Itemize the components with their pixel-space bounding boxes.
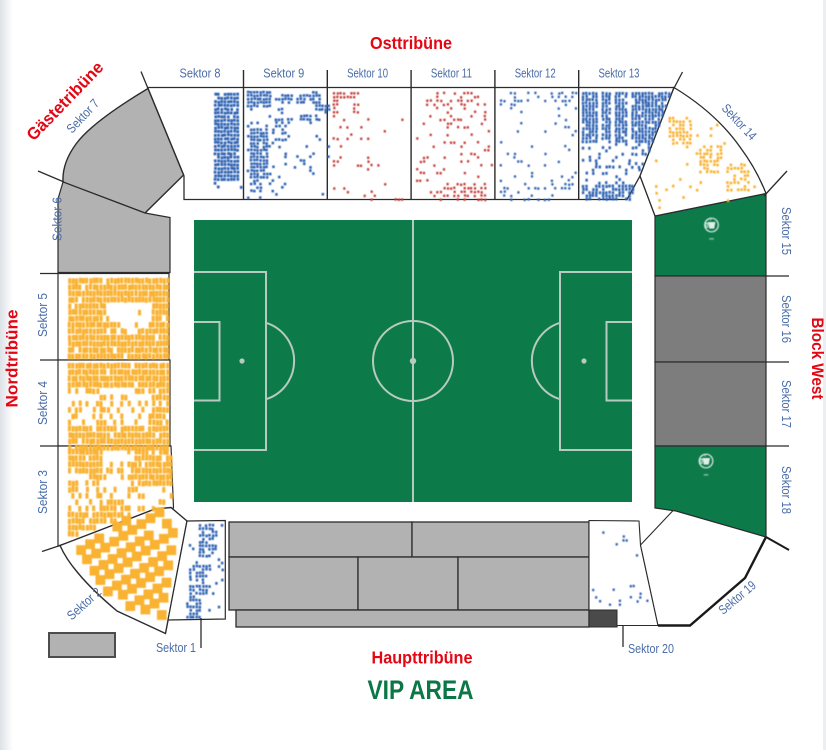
svg-text:Sektor 15: Sektor 15 [779,207,794,255]
svg-text:Block West: Block West [808,318,826,400]
svg-text:Sektor 11: Sektor 11 [431,66,472,81]
svg-text:Osttribüne: Osttribüne [370,33,452,53]
svg-text:Haupttribüne: Haupttribüne [372,648,473,668]
svg-text:Sektor 13: Sektor 13 [599,66,640,81]
svg-text:Sektor 1: Sektor 1 [156,640,196,655]
svg-text:Sektor 10: Sektor 10 [347,66,388,81]
svg-text:Sektor 12: Sektor 12 [515,66,556,81]
svg-text:Sektor 6: Sektor 6 [50,197,65,241]
svg-text:Sektor 18: Sektor 18 [779,466,794,514]
svg-text:Sektor 16: Sektor 16 [779,295,794,343]
svg-text:Sektor 4: Sektor 4 [35,381,50,425]
svg-text:Sektor 3: Sektor 3 [35,470,50,514]
svg-text:Nordtribüne: Nordtribüne [3,310,22,408]
svg-text:Sektor 5: Sektor 5 [35,293,50,337]
svg-text:VIP AREA: VIP AREA [368,675,474,705]
svg-text:Sektor 8: Sektor 8 [180,66,221,81]
svg-text:Sektor 9: Sektor 9 [263,66,304,81]
svg-text:Sektor 17: Sektor 17 [779,380,794,428]
svg-text:Sektor 20: Sektor 20 [628,641,674,656]
